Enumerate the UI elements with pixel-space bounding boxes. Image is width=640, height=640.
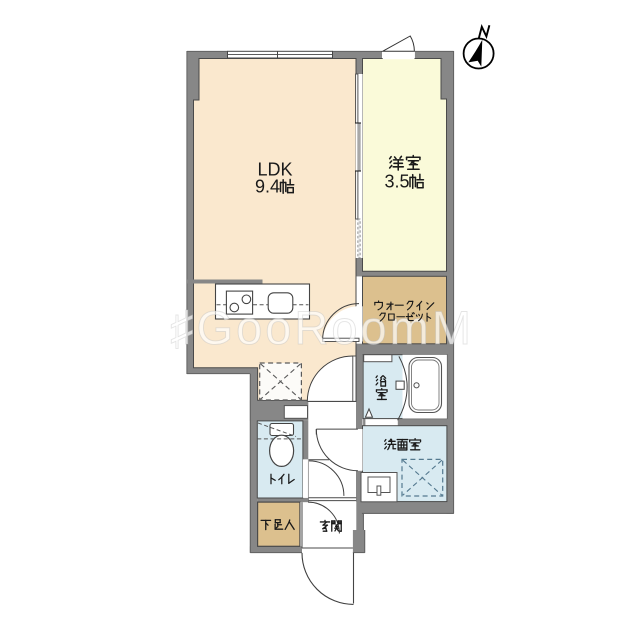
svg-text:9.4: 9.4 <box>255 177 280 197</box>
svg-text:3.5: 3.5 <box>384 172 409 192</box>
